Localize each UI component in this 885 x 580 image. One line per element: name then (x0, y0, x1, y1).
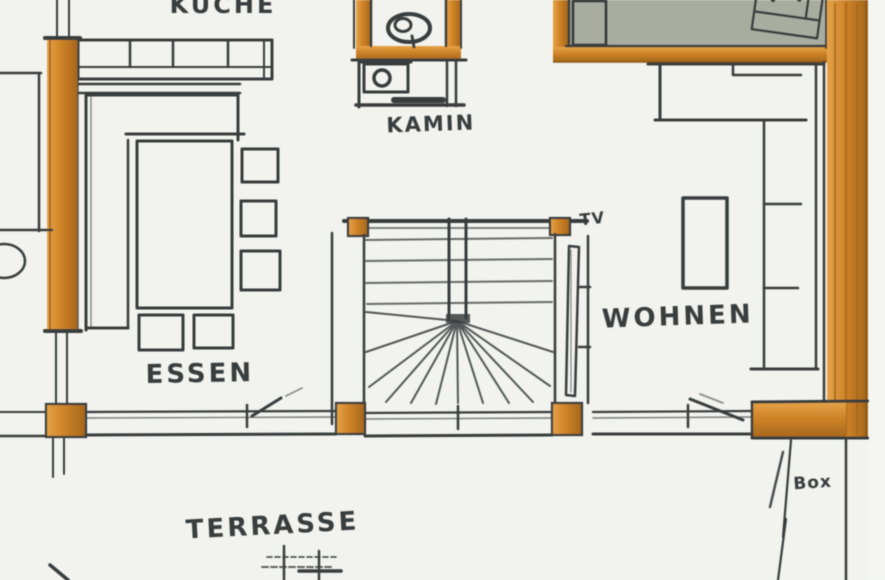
wood-post (348, 218, 368, 236)
door-swing-stroke (700, 394, 723, 403)
wood-wall-segment (356, 46, 461, 60)
chair (139, 315, 183, 350)
glass-door-line (86, 417, 336, 418)
fireplace: KAMIN (356, 61, 476, 138)
toilet-bowl (395, 19, 411, 32)
floor-plan-sketch: KAMIN KÜCHE ESSEN (0, 0, 885, 580)
living-area: WOHNEN (601, 64, 824, 369)
toilet-outlet (412, 36, 414, 47)
box-storage: Box (770, 440, 846, 580)
paper-edge (869, 0, 885, 580)
label-kamin: KAMIN (386, 110, 476, 137)
staircase: TV (332, 208, 606, 435)
wc-room (352, 0, 466, 60)
glass-door-line (593, 411, 752, 412)
door-swing-stroke (286, 388, 302, 396)
label-terrasse: TERRASSE (185, 506, 360, 545)
bottom-wall (0, 388, 868, 580)
door-swing-stroke (252, 398, 281, 416)
wood-wall-segment (752, 402, 846, 438)
chair (241, 251, 280, 290)
tv-panel (566, 246, 579, 396)
shelf-line (733, 64, 801, 75)
wood-post (550, 218, 570, 235)
wood-post (336, 403, 365, 434)
wood-wall-segment (553, 47, 830, 62)
label-essen: ESSEN (145, 358, 254, 390)
floor-plan-drawing: KAMIN KÜCHE ESSEN (0, 0, 885, 580)
chair (194, 315, 233, 348)
box-wall (778, 519, 786, 580)
fixture-arc (0, 244, 25, 278)
glass-door-line (593, 417, 752, 418)
box-wall (783, 440, 791, 537)
coffee-table (683, 198, 727, 288)
box-door-stroke (770, 452, 783, 507)
terrace-area: TERRASSE (185, 506, 360, 580)
dining-table (137, 141, 232, 308)
wall-line (86, 434, 336, 435)
wall-line (752, 401, 868, 402)
glass-door-line (86, 411, 336, 412)
wall-line (365, 435, 552, 436)
stair-treads (366, 238, 552, 304)
kitchen-area: KÜCHE (60, 0, 276, 330)
dining-area: ESSEN (126, 134, 280, 390)
label-wohnen: WOHNEN (601, 299, 754, 334)
wood-post (46, 404, 86, 437)
upper-terrace-area (553, 0, 830, 62)
label-tv: TV (579, 208, 606, 230)
wood-wall (827, 0, 868, 437)
chair (242, 149, 278, 182)
chair (241, 201, 276, 236)
stair-winders (366, 312, 553, 404)
kitchen-counter (78, 40, 272, 79)
island-bench-outline (86, 95, 238, 330)
label-kueche: KÜCHE (170, 0, 277, 19)
wood-post (552, 403, 582, 435)
wood-wall (47, 38, 78, 333)
label-box: Box (793, 472, 833, 495)
right-wood-wall (824, 0, 868, 437)
fireplace-box (364, 64, 408, 92)
left-wood-wall (0, 0, 81, 412)
edge-stroke (50, 565, 68, 580)
flue-circle (374, 70, 390, 86)
